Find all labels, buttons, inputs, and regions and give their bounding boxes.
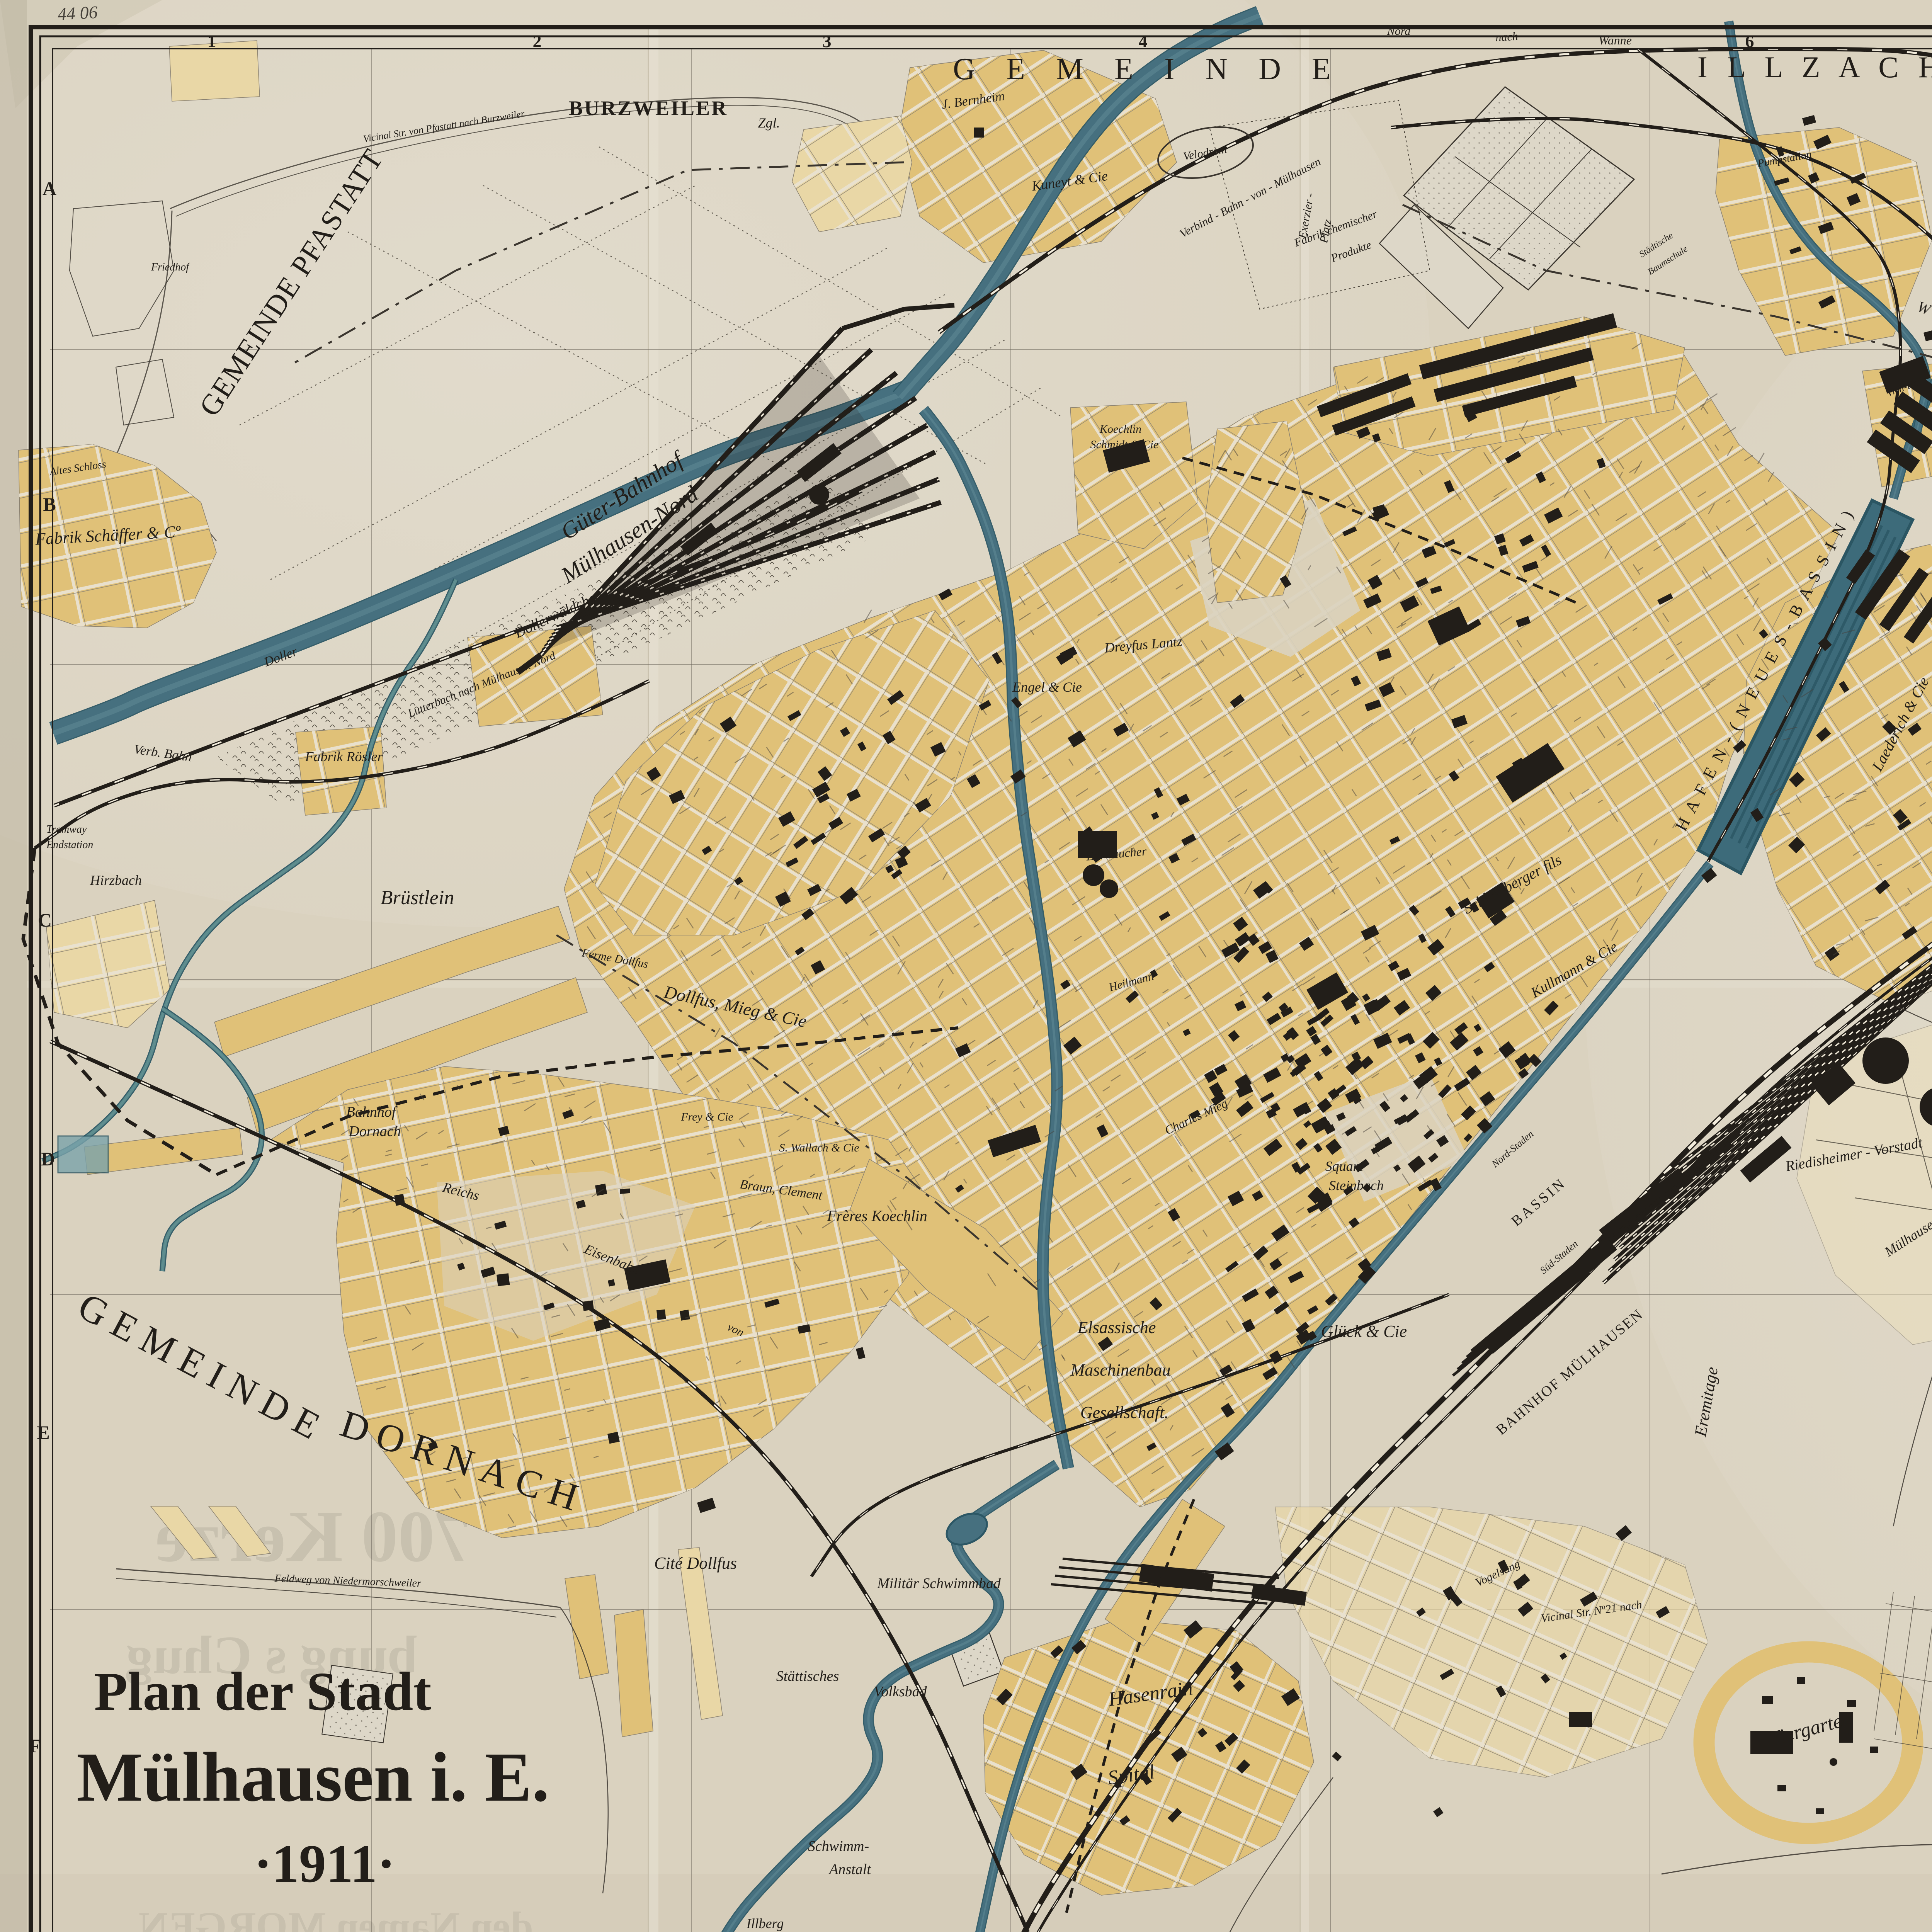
svg-text:Volksbad: Volksbad <box>874 1684 927 1700</box>
svg-text:I L L Z A C H: I L L Z A C H <box>1697 50 1932 84</box>
svg-text:C: C <box>38 909 52 931</box>
svg-text:Brüstlein: Brüstlein <box>381 887 454 909</box>
svg-text:Friedhof: Friedhof <box>151 261 190 273</box>
svg-text:Hirzbach: Hirzbach <box>90 872 142 888</box>
svg-text:A: A <box>43 178 56 199</box>
svg-text:B: B <box>43 493 56 515</box>
svg-text:Elsassische: Elsassische <box>1077 1318 1156 1337</box>
svg-text:D: D <box>41 1148 55 1170</box>
svg-text:Fabrik Rösler: Fabrik Rösler <box>305 749 383 764</box>
svg-text:Bahnhof: Bahnhof <box>346 1104 398 1120</box>
svg-text:Frey & Cie: Frey & Cie <box>680 1111 733 1123</box>
svg-text:S. Wallach & Cie: S. Wallach & Cie <box>779 1141 859 1154</box>
svg-text:den Namen MORGEN: den Namen MORGEN <box>139 1903 533 1932</box>
svg-text:Frères Koechlin: Frères Koechlin <box>827 1207 927 1225</box>
svg-text:Plan der Stadt: Plan der Stadt <box>94 1661 431 1722</box>
svg-text:4: 4 <box>1139 31 1148 51</box>
svg-text:Steinbach: Steinbach <box>1329 1178 1384 1193</box>
svg-text:Koechlin: Koechlin <box>1099 423 1141 435</box>
svg-text:Mülhausen i. E.: Mülhausen i. E. <box>77 1738 549 1816</box>
svg-text:1: 1 <box>207 31 216 51</box>
svg-text:BURZWEILER: BURZWEILER <box>569 97 728 120</box>
svg-text:Square: Square <box>1325 1158 1364 1174</box>
svg-text:G E M E I N D E: G E M E I N D E <box>953 52 1342 86</box>
svg-text:Anstalt: Anstalt <box>828 1861 871 1878</box>
svg-text:E: E <box>37 1422 49 1443</box>
svg-text:Schwimm-: Schwimm- <box>808 1838 869 1854</box>
svg-text:Maschinenbau: Maschinenbau <box>1070 1361 1170 1379</box>
svg-text:700 Kerze: 700 Kerze <box>155 1496 471 1577</box>
svg-text:Wanne: Wanne <box>1599 33 1632 47</box>
svg-text:Militär Schwimmbad: Militär Schwimmbad <box>877 1575 1001 1592</box>
svg-text:Illberg: Illberg <box>746 1916 784 1931</box>
svg-text:2: 2 <box>533 31 542 51</box>
svg-text:6: 6 <box>1745 31 1754 51</box>
svg-text:·1911·: ·1911· <box>254 1834 395 1894</box>
svg-text:Zgl.: Zgl. <box>758 115 780 131</box>
svg-text:Dornach: Dornach <box>348 1123 401 1139</box>
svg-text:3: 3 <box>823 31 832 51</box>
svg-text:Engel & Cie: Engel & Cie <box>1012 679 1082 695</box>
svg-text:44 06: 44 06 <box>57 2 98 24</box>
svg-text:Schmidt & Cie: Schmidt & Cie <box>1090 438 1159 451</box>
svg-text:F: F <box>29 1735 41 1757</box>
svg-text:Gesellschaft.: Gesellschaft. <box>1080 1403 1169 1422</box>
svg-text:Glück & Cie: Glück & Cie <box>1321 1322 1407 1341</box>
svg-text:Cité Dollfus: Cité Dollfus <box>654 1554 737 1573</box>
svg-text:Stättisches: Stättisches <box>776 1668 839 1684</box>
